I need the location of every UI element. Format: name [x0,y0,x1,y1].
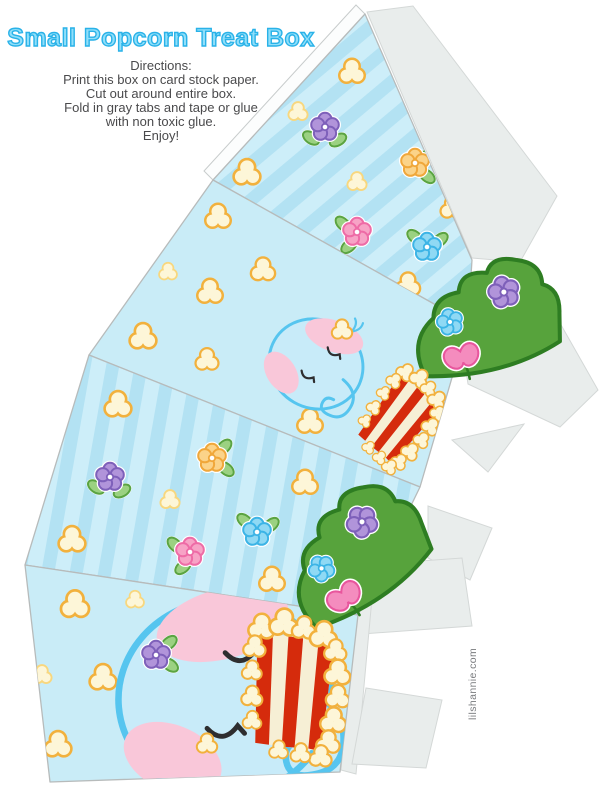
popcorn-icon [160,264,176,279]
popcorn-icon [261,568,284,590]
directions-block: Directions: Print this box on card stock… [0,59,322,143]
popcorn-icon [252,259,274,279]
glue-tab [352,688,442,768]
popcorn-icon [46,732,70,755]
popcorn-icon [207,205,230,227]
popcorn-icon [33,666,50,682]
popcorn-icon [199,280,222,302]
popcorn-icon [294,471,317,493]
popcorn-icon [198,734,216,751]
popcorn-icon [62,592,87,616]
directions-line: Enjoy! [0,129,322,143]
popcorn-icon [341,60,364,82]
popcorn-icon [348,173,365,189]
page-title: Small Popcorn Treat Box [0,24,322,53]
watermark-text: lilshannie.com [467,648,479,720]
printable-page: lilshannie.com Small Popcorn Treat Box D… [0,0,612,792]
popcorn-icon [131,324,155,347]
popcorn-icon [60,527,84,550]
glue-tab [452,424,524,472]
popcorn-icon [333,320,351,337]
popcorn-icon [299,410,322,432]
popcorn-icon [91,665,115,688]
directions-heading: Directions: [0,59,322,73]
directions-line: with non toxic glue. [0,115,322,129]
popcorn-icon [197,349,218,368]
directions-line: Fold in gray tabs and tape or glue [0,101,322,115]
popcorn-icon [10,639,31,658]
popcorn-icon [161,491,178,507]
popcorn-icon [235,160,259,183]
directions-line: Print this box on card stock paper. [0,73,322,87]
directions-line: Cut out around entire box. [0,87,322,101]
popcorn-icon [127,592,143,607]
popcorn-icon [106,392,130,415]
